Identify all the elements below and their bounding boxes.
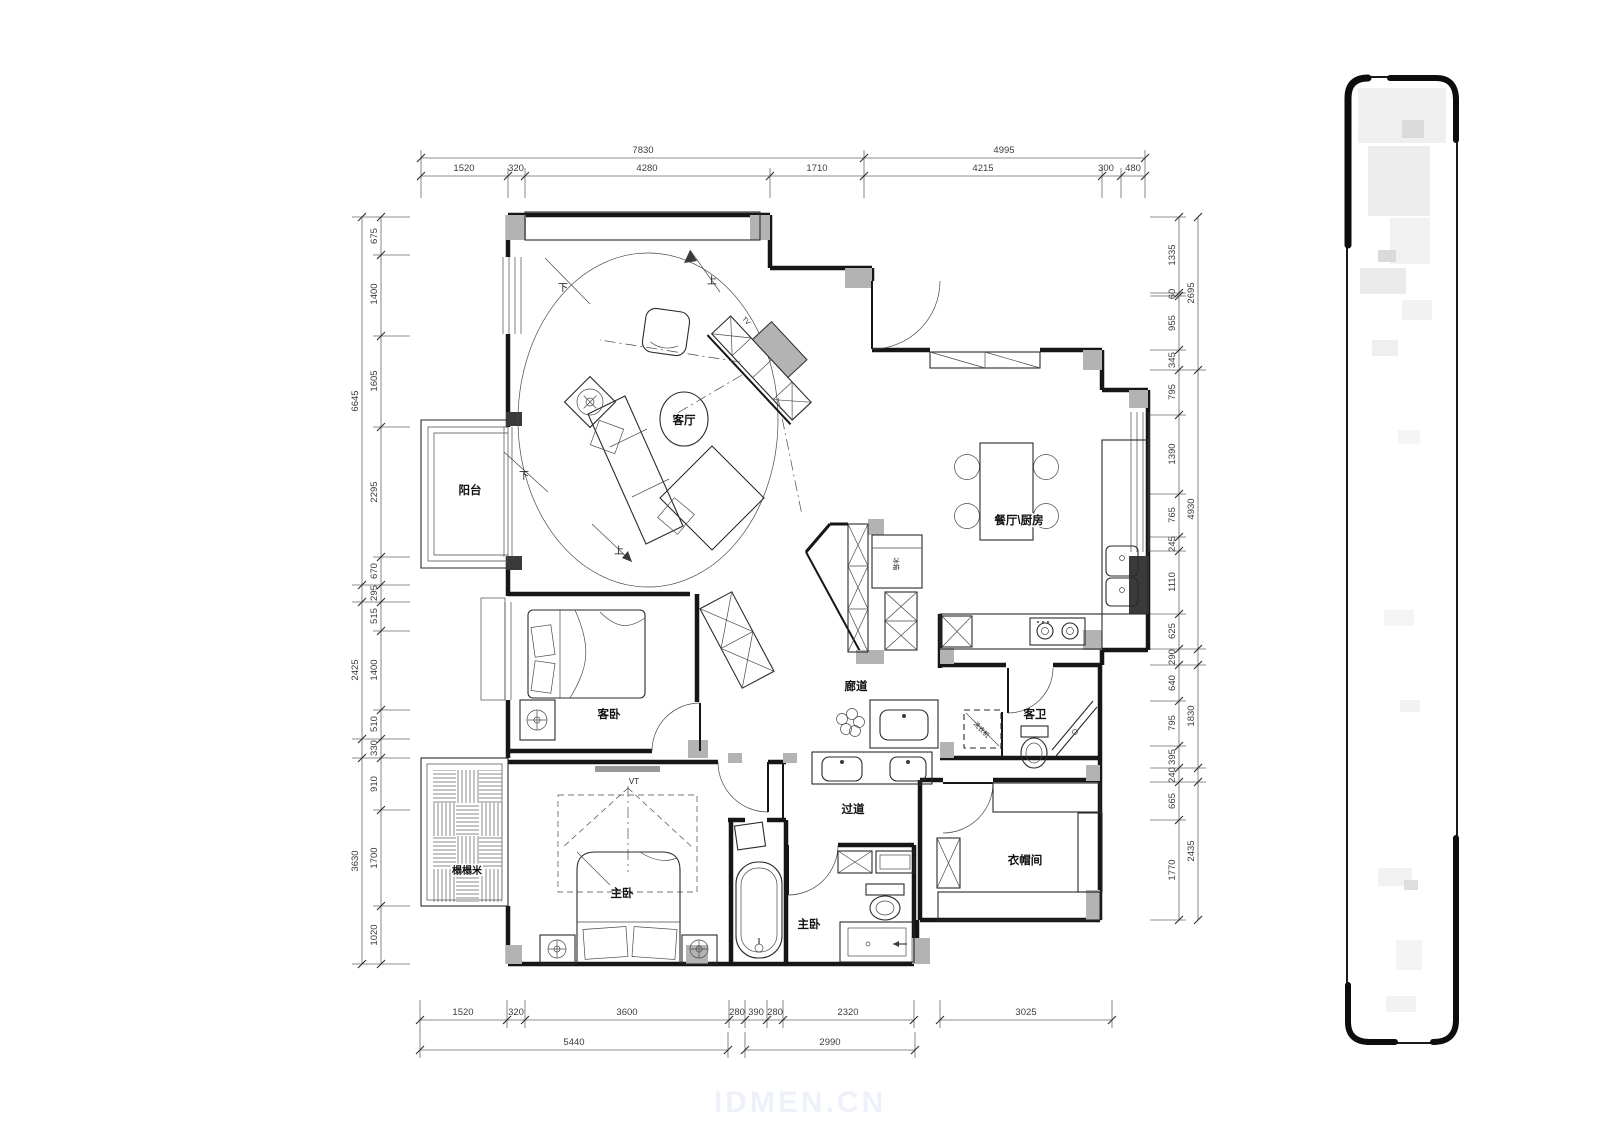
- dim-label: 2695: [1186, 282, 1197, 303]
- watermark: IDMEN.CN: [714, 1086, 886, 1119]
- master-bedroom: VT 主卧: [540, 766, 717, 964]
- dim-label: 4280: [636, 163, 657, 174]
- stair-label-up: 上: [614, 545, 624, 557]
- dim-label: 1710: [806, 163, 827, 174]
- dim-label: 1770: [1167, 859, 1178, 880]
- dim-label: 910: [369, 776, 380, 792]
- flower-decor: [837, 709, 865, 737]
- room-label-cloakroom: 衣帽间: [1008, 853, 1043, 867]
- room-label-hallway: 过道: [842, 802, 865, 816]
- dim-label: 4995: [993, 145, 1014, 156]
- dim-label: 1020: [369, 924, 380, 945]
- dim-label: 1700: [369, 847, 380, 868]
- balcony: 阳台: [421, 420, 508, 568]
- dim-label: 60: [1167, 289, 1178, 300]
- dim-label: 1335: [1167, 244, 1178, 265]
- dim-label: 510: [369, 716, 380, 732]
- corridor: 冰箱 廊道: [845, 524, 923, 693]
- dim-label: 320: [508, 1007, 524, 1018]
- living-room: 客厅 下 上 下 上 TV: [504, 250, 832, 587]
- dim-label: 675: [369, 228, 380, 244]
- dim-label: 245: [1167, 536, 1178, 552]
- dim-label: 1110: [1167, 572, 1178, 592]
- washing-machine: 洗衣机: [964, 710, 1001, 748]
- dim-label: 300: [1098, 163, 1114, 174]
- dim-label: 395: [1167, 749, 1178, 765]
- dim-label: 4215: [972, 163, 993, 174]
- dim-label: 640: [1167, 675, 1178, 691]
- dim-label: 955: [1167, 315, 1178, 331]
- dim-label: 1830: [1186, 705, 1197, 726]
- dim-label: 280: [767, 1007, 783, 1018]
- dim-label: 4930: [1186, 498, 1197, 519]
- dim-label: 480: [1125, 163, 1141, 174]
- dim-label: 625: [1167, 623, 1178, 639]
- room-label-dining-kitchen: 餐厅\厨房: [993, 513, 1043, 527]
- dim-label: 330: [369, 740, 380, 756]
- room-label-balcony: 阳台: [459, 483, 482, 497]
- dim-label: 3630: [350, 850, 361, 871]
- dining-kitchen: 餐厅\厨房: [940, 440, 1148, 649]
- tatami-room: 榻榻米: [421, 758, 508, 906]
- dim-label: 3600: [616, 1007, 637, 1018]
- dim-label: 795: [1167, 715, 1178, 731]
- armchair: [641, 307, 691, 357]
- room-label-guest-bath: 客卫: [1023, 707, 1047, 721]
- washer-label: 洗衣机: [972, 719, 993, 740]
- dim-label: 795: [1167, 384, 1178, 400]
- dim-label: 7830: [632, 145, 653, 156]
- tv-label: TV: [740, 316, 751, 327]
- tv-point-label: VT: [629, 777, 639, 786]
- dim-label: 280: [729, 1007, 745, 1018]
- dim-label: 1605: [369, 370, 380, 391]
- stair-label-down: 下: [558, 283, 568, 294]
- dim-label: 2320: [837, 1007, 858, 1018]
- dim-label: 1400: [369, 283, 380, 304]
- dim-label: 290: [1167, 649, 1178, 665]
- dim-label: 765: [1167, 507, 1178, 523]
- dimension-labels: 7830 4995 1520 320 4280 1710 4215 300 48…: [350, 145, 1197, 1048]
- fridge-label: 冰箱: [892, 558, 901, 572]
- dim-label: 670: [369, 563, 380, 579]
- floor-plan-canvas: 7830 4995 1520 320 4280 1710 4215 300 48…: [0, 0, 1600, 1131]
- floor-plan-page: 7830 4995 1520 320 4280 1710 4215 300 48…: [0, 0, 1600, 1131]
- dim-label: 2425: [350, 659, 361, 680]
- dim-label: 295: [369, 585, 380, 601]
- room-label-master-bath: 主卧: [798, 917, 821, 931]
- guest-bedroom: 客卧: [520, 592, 774, 740]
- dim-label: 345: [1167, 352, 1178, 368]
- dim-label: 3025: [1015, 1007, 1036, 1018]
- dim-label: 515: [369, 608, 380, 624]
- cloakroom: 衣帽间: [937, 783, 1102, 920]
- room-label-tatami: 榻榻米: [452, 864, 483, 877]
- dim-label: 240: [1167, 767, 1178, 783]
- room-label-corridor: 廊道: [845, 679, 868, 693]
- dim-label: 2435: [1186, 840, 1197, 861]
- dim-label: 1400: [369, 659, 380, 680]
- page-curl-graphic: [1347, 77, 1457, 1043]
- stair-label-up: 上: [707, 275, 717, 287]
- dim-label: 665: [1167, 793, 1178, 809]
- dim-label: 2295: [369, 481, 380, 502]
- guest-wardrobe: [700, 592, 774, 688]
- room-label-guest-bedroom: 客卧: [597, 707, 621, 721]
- stair-label-down: 下: [519, 471, 529, 482]
- dim-label: 5440: [563, 1037, 584, 1048]
- dim-label: 1520: [452, 1007, 473, 1018]
- dim-label: 6645: [350, 390, 361, 411]
- room-label-master-bedroom: 主卧: [611, 886, 634, 900]
- guest-toilet: [1021, 726, 1048, 768]
- dim-label: 390: [748, 1007, 764, 1018]
- dim-label: 320: [508, 163, 524, 174]
- dim-label: 1390: [1167, 443, 1178, 464]
- room-label-living: 客厅: [672, 413, 696, 427]
- dim-label: 2990: [819, 1037, 840, 1048]
- dim-label: 1520: [453, 163, 474, 174]
